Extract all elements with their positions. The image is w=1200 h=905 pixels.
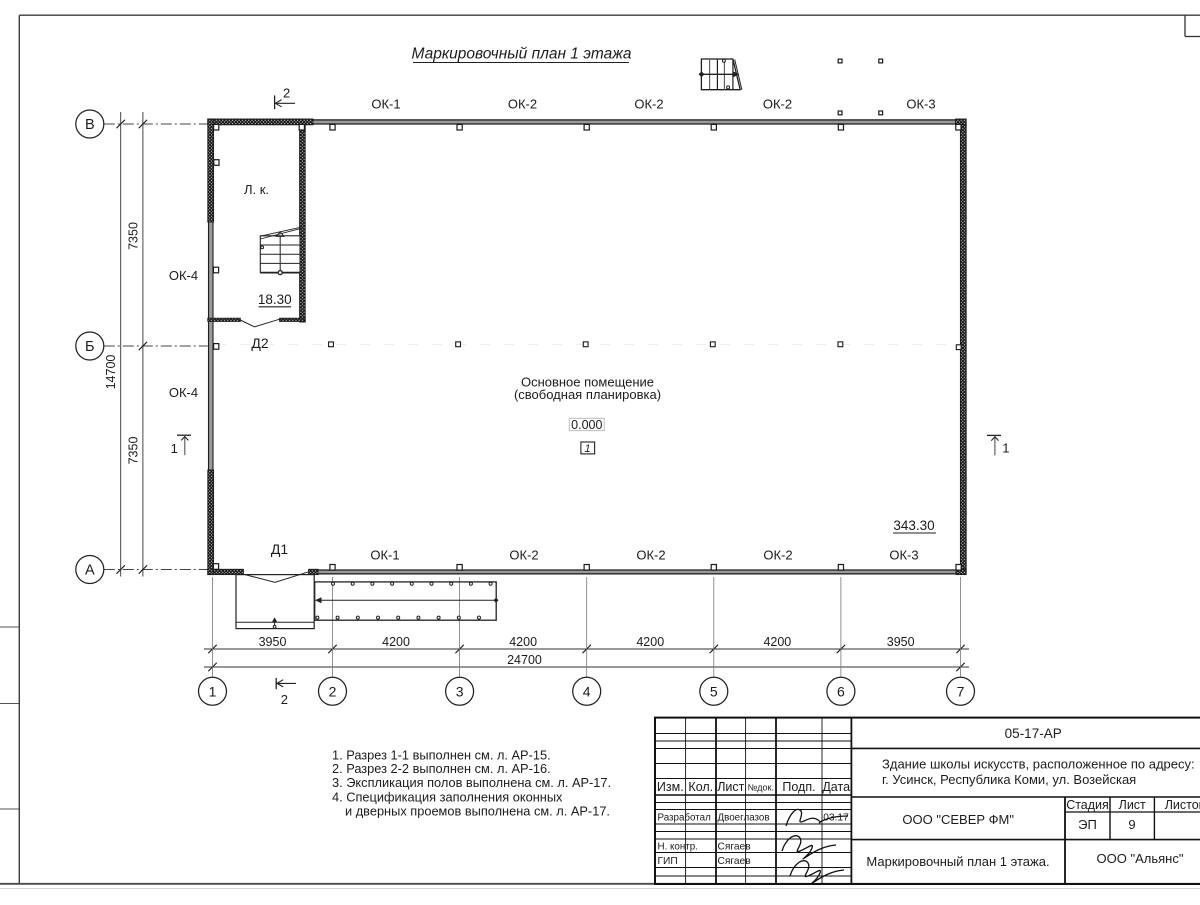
svg-text:4. Спецификация заполнения око: 4. Спецификация заполнения оконных [332, 789, 563, 804]
svg-text:4200: 4200 [636, 635, 664, 649]
svg-text:ООО "СЕВЕР ФМ": ООО "СЕВЕР ФМ" [902, 812, 1014, 827]
svg-text:7350: 7350 [126, 437, 140, 465]
svg-text:3. Экспликация полов выполнена: 3. Экспликация полов выполнена см. л. АР… [332, 775, 611, 790]
svg-text:1: 1 [584, 443, 590, 455]
svg-text:ОК-2: ОК-2 [508, 97, 537, 112]
svg-text:03.17: 03.17 [823, 812, 849, 823]
svg-text:Маркировочный план 1 этажа.: Маркировочный план 1 этажа. [866, 854, 1049, 869]
svg-text:1: 1 [1002, 441, 1009, 456]
svg-text:Двоеглазов: Двоеглазов [718, 812, 770, 823]
svg-text:ОК-2: ОК-2 [634, 97, 663, 112]
svg-text:6: 6 [837, 683, 845, 699]
svg-text:1: 1 [171, 441, 178, 456]
svg-text:9: 9 [1128, 817, 1135, 832]
svg-text:В: В [85, 117, 95, 133]
svg-text:Б: Б [85, 339, 95, 355]
svg-text:ОК-1: ОК-1 [370, 547, 399, 562]
svg-text:ГИП: ГИП [658, 856, 678, 867]
svg-text:4200: 4200 [509, 635, 537, 649]
svg-text:3: 3 [456, 683, 464, 699]
svg-text:Разработал: Разработал [658, 812, 712, 823]
svg-text:Здание школы искусств, располо: Здание школы искусств, расположенное по … [882, 757, 1195, 772]
svg-text:2: 2 [283, 86, 290, 101]
svg-text:Дата: Дата [822, 780, 850, 794]
svg-text:24700: 24700 [507, 653, 542, 667]
svg-text:ОК-3: ОК-3 [889, 547, 918, 562]
svg-text:7: 7 [957, 683, 965, 699]
svg-text:Д2: Д2 [251, 335, 268, 351]
svg-text:ОК-1: ОК-1 [371, 97, 400, 112]
svg-text:Н. контр.: Н. контр. [658, 842, 698, 853]
svg-text:4200: 4200 [763, 635, 791, 649]
svg-text:г. Усинск, Республика Коми, ул: г. Усинск, Республика Коми, ул. Возейска… [882, 772, 1136, 787]
svg-text:3950: 3950 [259, 635, 287, 649]
svg-text:Лист: Лист [717, 780, 744, 794]
svg-text:Стадия: Стадия [1066, 798, 1109, 812]
svg-text:Изм.: Изм. [657, 780, 684, 794]
svg-text:Д1: Д1 [271, 541, 288, 557]
svg-text:14700: 14700 [104, 355, 118, 390]
svg-text:0.000: 0.000 [571, 418, 602, 432]
svg-text:ОК-2: ОК-2 [509, 547, 538, 562]
svg-text:ООО "Альянс": ООО "Альянс" [1097, 851, 1184, 866]
svg-text:4: 4 [583, 683, 591, 699]
svg-text:А: А [85, 563, 95, 579]
svg-text:(свободная планировка): (свободная планировка) [514, 387, 661, 402]
svg-text:2. Разрез 2-2 выполнен см. л.: 2. Разрез 2-2 выполнен см. л. АР-16. [332, 761, 551, 776]
svg-text:ОК-4: ОК-4 [169, 268, 198, 283]
svg-text:18.30: 18.30 [258, 292, 292, 307]
svg-text:2: 2 [281, 692, 288, 707]
svg-text:Л. к.: Л. к. [244, 182, 269, 197]
svg-text:ОК-2: ОК-2 [636, 547, 665, 562]
svg-text:Подп.: Подп. [782, 780, 815, 794]
svg-text:Листов: Листов [1165, 798, 1200, 812]
svg-text:3950: 3950 [887, 635, 915, 649]
svg-text:ЭП: ЭП [1078, 817, 1097, 832]
svg-text:Кол.: Кол. [688, 780, 713, 794]
svg-text:05-17-АР: 05-17-АР [1005, 726, 1062, 741]
svg-text:5: 5 [710, 683, 718, 699]
svg-text:ОК-2: ОК-2 [763, 97, 792, 112]
svg-text:ОК-4: ОК-4 [169, 385, 198, 400]
svg-text:Лист: Лист [1119, 798, 1146, 812]
svg-text:1: 1 [209, 683, 217, 699]
svg-text:Маркировочный план 1 этажа: Маркировочный план 1 этажа [412, 46, 632, 63]
svg-text:ОК-3: ОК-3 [906, 97, 935, 112]
svg-text:и дверных проемов выполнена см: и дверных проемов выполнена см. л. АР-17… [345, 803, 610, 818]
svg-text:№док.: №док. [748, 782, 774, 792]
svg-text:343.30: 343.30 [893, 518, 934, 533]
svg-text:7350: 7350 [126, 222, 140, 250]
svg-text:Сягаев: Сягаев [718, 856, 751, 867]
svg-text:2: 2 [329, 683, 337, 699]
svg-text:4200: 4200 [382, 635, 410, 649]
svg-text:ОК-2: ОК-2 [763, 547, 792, 562]
svg-text:Сягаев: Сягаев [718, 842, 751, 853]
